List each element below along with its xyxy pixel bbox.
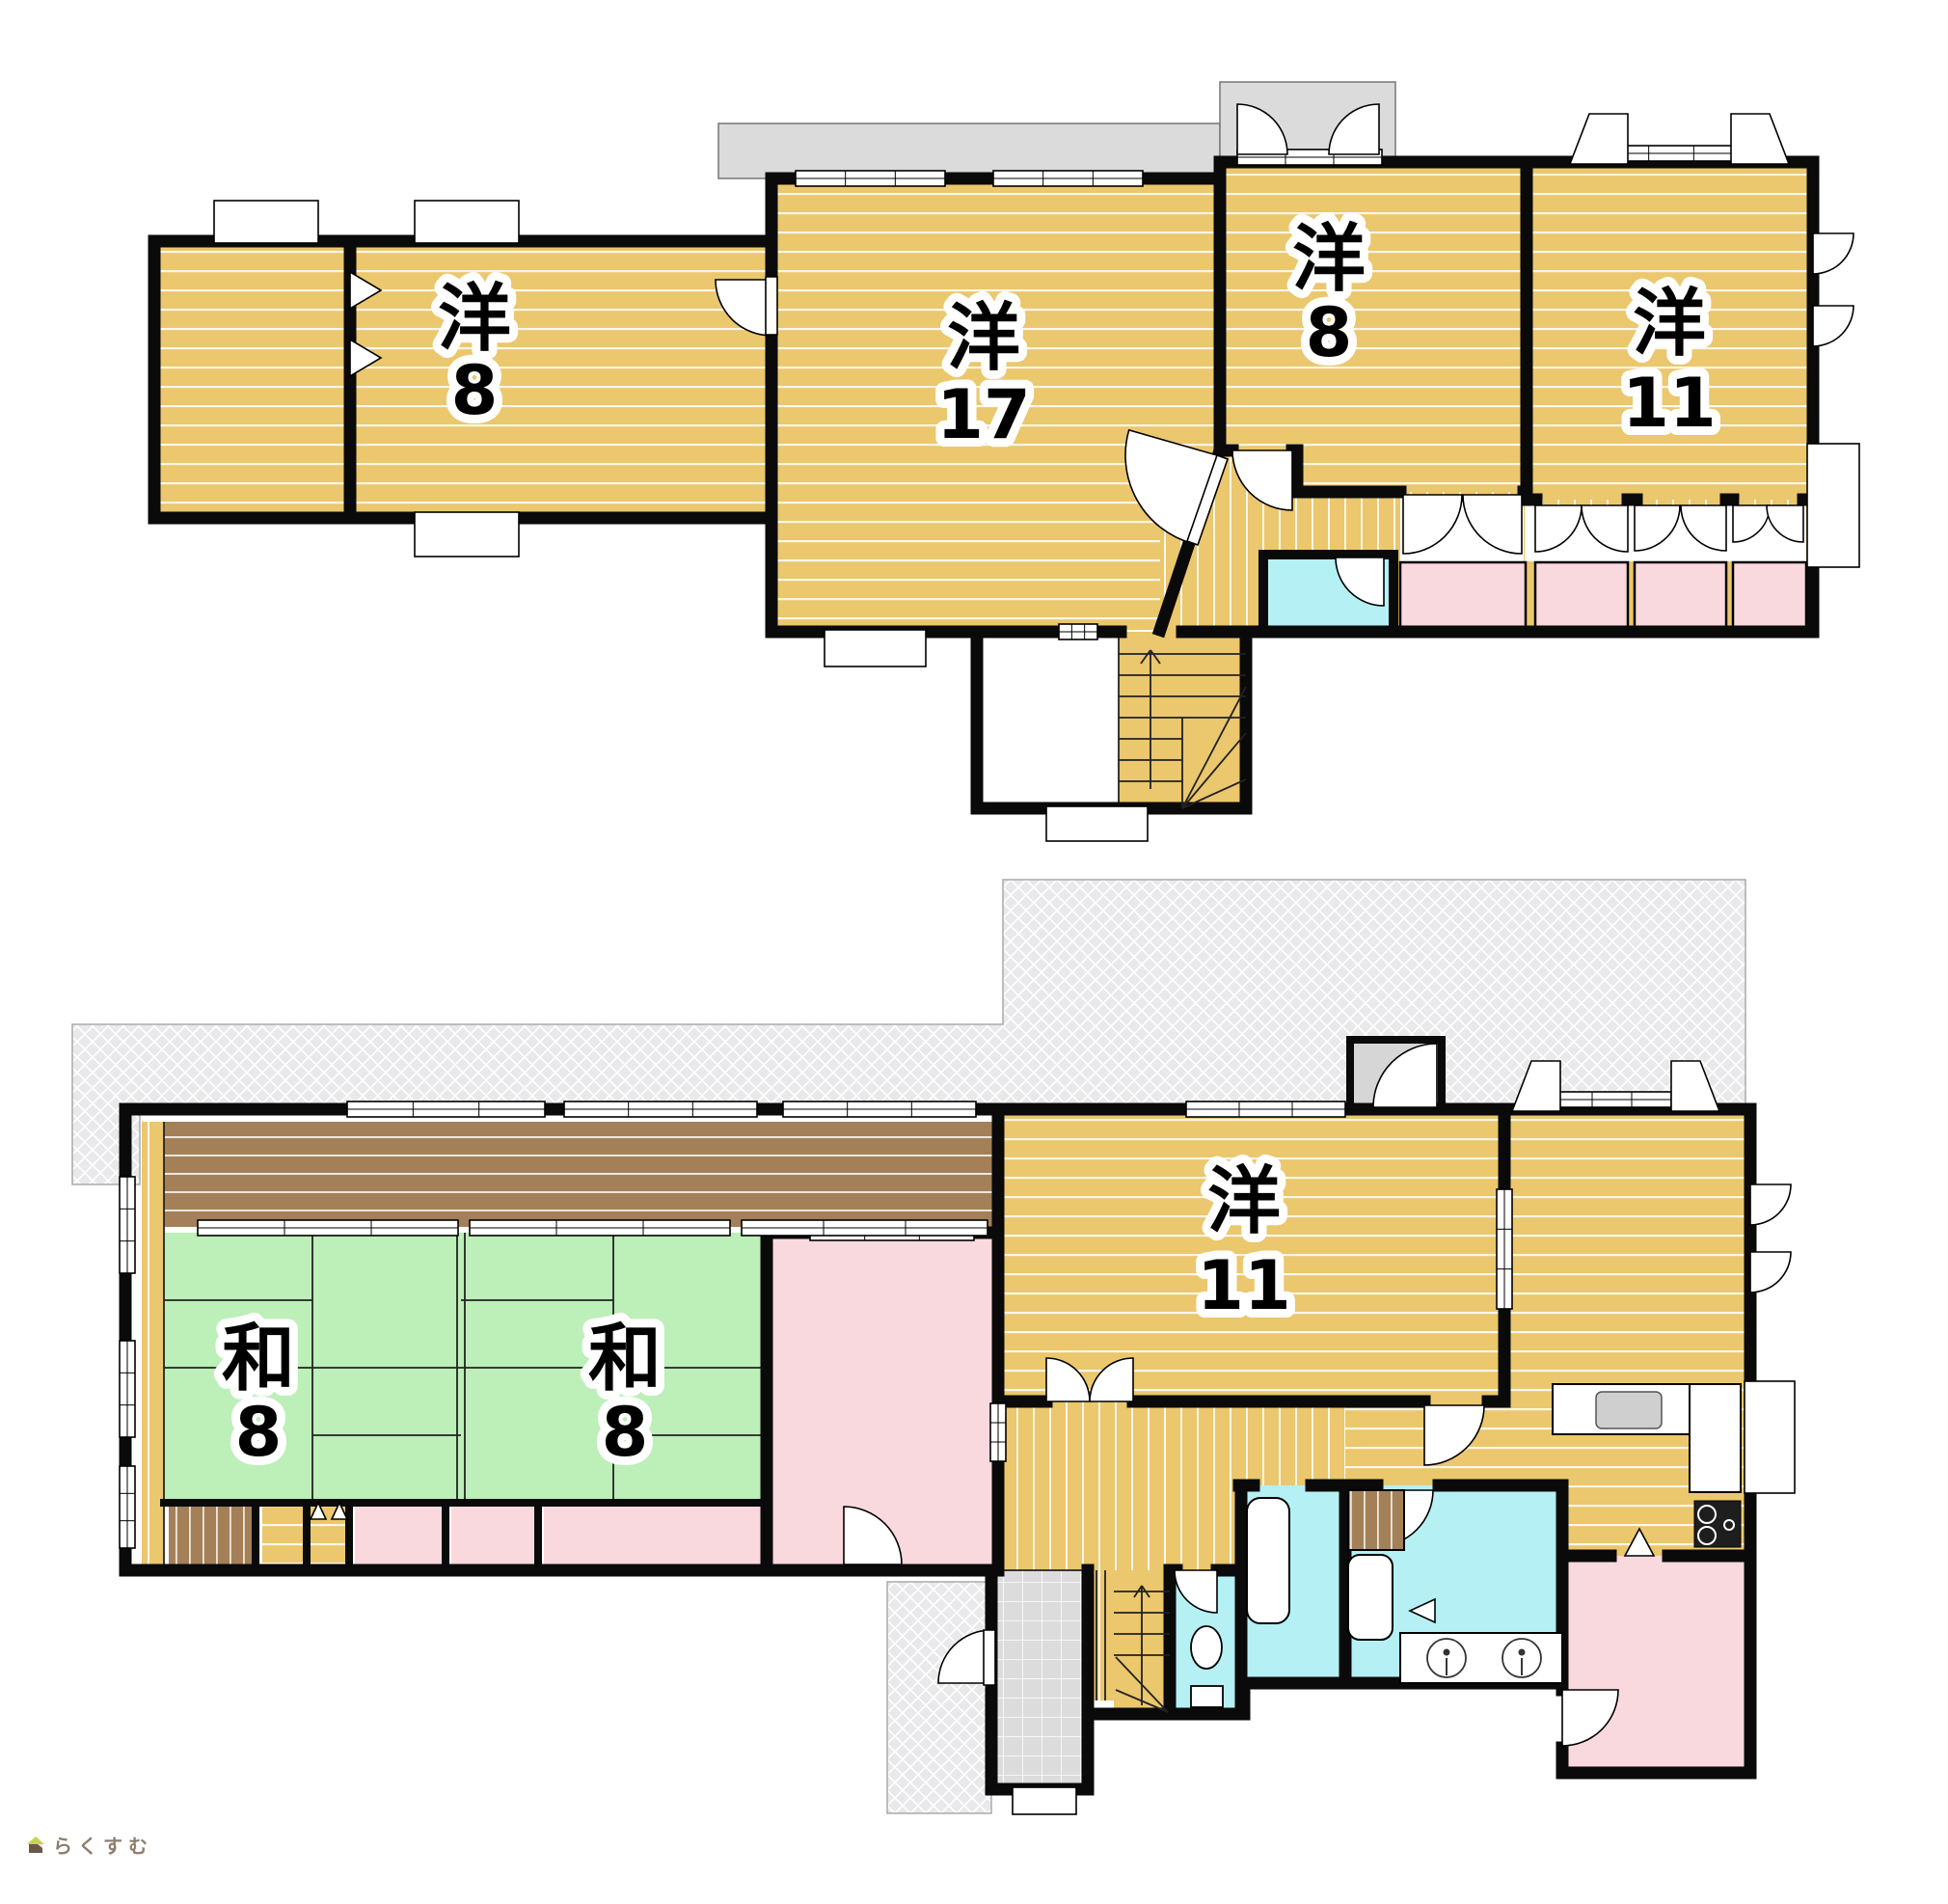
room-label: 洋 [947,295,1020,381]
room-label: 洋 [1292,216,1366,302]
room-label: 8 [1306,293,1353,372]
room-label: 洋 [1207,1158,1281,1244]
site-logo: らくすむ [25,1831,153,1859]
logo-house-icon [25,1835,46,1856]
logo-text: らくすむ [53,1831,153,1859]
floorplan-page: 洋8洋17洋8洋11和8和8洋11 らくすむ [0,0,1948,1904]
room-label: 17 [936,375,1030,454]
room-label: 洋 [1633,281,1706,367]
room-label: 11 [1622,364,1716,443]
room-label: 洋 [438,276,511,362]
room-label: 8 [602,1393,649,1472]
floorplan-drawing: 洋8洋17洋8洋11和8和8洋11 [0,0,1948,1904]
room-label: 11 [1197,1246,1290,1325]
room-label: 和 [588,1316,662,1401]
room-label: 和 [222,1316,295,1401]
room-label: 8 [451,351,499,430]
room-label: 8 [235,1393,283,1472]
